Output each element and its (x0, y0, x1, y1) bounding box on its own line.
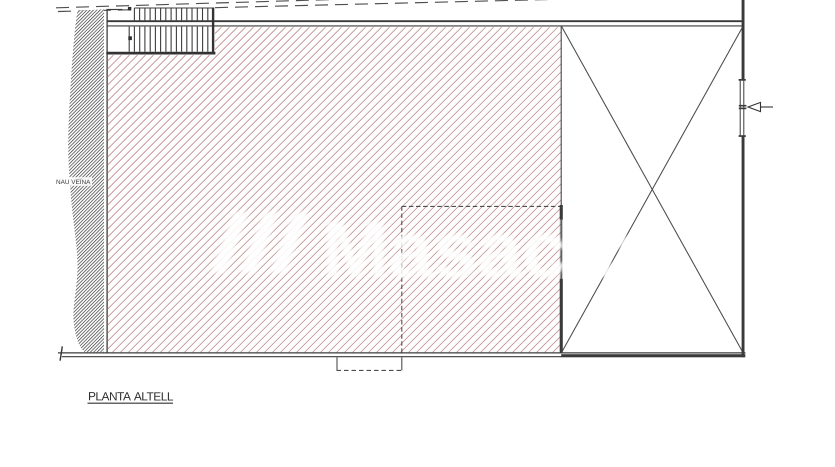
svg-text:Masachs: Masachs (322, 205, 660, 294)
svg-text:PLANTA ALTELL: PLANTA ALTELL (88, 389, 174, 403)
svg-text:NAU VEÏNA: NAU VEÏNA (56, 178, 91, 186)
